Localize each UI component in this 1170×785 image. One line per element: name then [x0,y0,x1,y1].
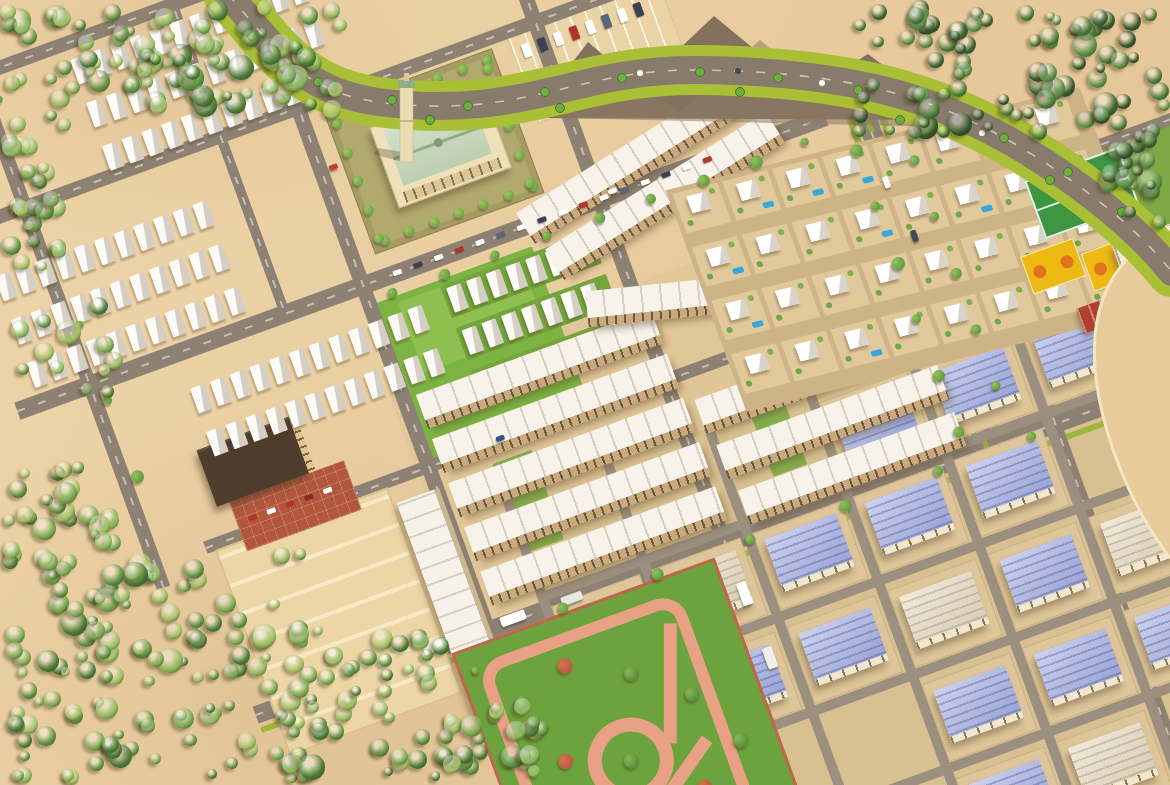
villa-pool [881,229,894,237]
townhouse-unit [423,348,446,378]
townhouse-unit [34,257,57,287]
villa-bush [706,273,714,280]
townhouse-unit [109,279,132,309]
villa-bush [1015,286,1023,293]
villa-bush [935,157,943,164]
townhouse-unit [204,294,227,324]
villa-house [1034,105,1060,127]
townhouse-unit [220,98,243,128]
townhouse-unit [169,19,192,49]
townhouse-unit [188,250,211,280]
townhouse-unit [205,55,228,85]
townhouse-unit [145,315,168,345]
townhouse-unit [189,12,212,42]
townhouse-unit [133,221,156,251]
warehouse-wall [1085,768,1159,785]
townhouse-unit [70,293,93,323]
townhouse-unit [66,344,89,374]
villa-house [885,142,911,164]
townhouse-unit [129,272,152,302]
townhouse-unit [0,272,18,302]
townhouse-unit [149,26,172,56]
townhouse-unit [309,341,332,371]
villa-bush [726,327,734,334]
warehouse-roof [1100,498,1170,577]
townhouse-unit [181,113,204,143]
townhouse-unit [90,48,113,78]
villa-house [725,299,751,321]
townhouse-unit [173,207,196,237]
villa-house [736,179,762,201]
villa-bush [825,302,833,309]
warehouse-wall [1149,319,1170,352]
townhouse-unit [319,62,342,92]
townhouse-unit [106,91,129,121]
villa-bush [1006,113,1014,120]
warehouse-roof [1068,722,1159,785]
villa-house [786,167,812,189]
warehouse-wall [1151,638,1170,671]
villa-bush [875,289,883,296]
townhouse-unit [303,19,326,49]
villa-house [844,327,870,349]
villa-house [905,195,931,217]
villa-bush [816,336,824,343]
street-tree [0,94,4,106]
villa-pool [870,349,883,357]
villa-bush [756,261,764,268]
townhouse-unit [387,312,410,342]
villa-bush [1035,133,1043,140]
court-circle [1059,253,1076,270]
villa-bush [795,368,803,375]
townhouse-unit [249,362,272,392]
villa-pool [981,204,994,212]
villa-bush [1044,306,1052,313]
townhouse-unit [165,308,188,338]
villa-bush [827,216,835,223]
villa-bush [855,236,863,243]
warehouse-solar-roof [865,477,956,556]
townhouse-unit [324,384,347,414]
warehouse-solar-roof [1034,628,1125,707]
townhouse-unit [279,77,302,107]
park-path [664,623,677,743]
townhouse-unit [305,391,328,421]
villa-bush [944,330,952,337]
townhouse-unit [226,420,249,450]
villa-pool [762,200,775,208]
villa-bush [846,270,854,277]
townhouse-unit [244,41,267,71]
townhouse-unit [264,33,287,63]
villa-house [745,352,771,374]
court-circle [1031,263,1048,280]
townhouse-unit [190,384,213,414]
villa-house [805,220,831,242]
townhouse-unit [86,98,109,128]
villa-bush [687,219,695,226]
townhouse-unit [268,0,291,13]
villa-house [954,183,980,205]
townhouse-unit [54,250,77,280]
villa-house [755,233,781,255]
townhouse-unit [364,370,387,400]
townhouse-unit [113,229,136,259]
city-plan-rotated [0,0,1170,785]
townhouse-unit [161,120,184,150]
townhouse-unit [74,243,97,273]
villa-bush [806,248,814,255]
townhouse-unit [383,362,406,392]
villa-house [935,129,961,151]
villa-bush [907,138,915,145]
townhouse-unit [90,286,113,316]
townhouse-unit [230,369,253,399]
court-circle [1092,260,1109,277]
villa-bush [894,343,902,350]
townhouse-unit [224,286,247,316]
warehouse-roof [899,571,990,650]
townhouse-unit [407,305,430,335]
villa-bush [985,145,993,152]
townhouse-unit [201,105,224,135]
villa-bush [775,314,783,321]
townhouse-unit [30,308,53,338]
villa-bush [758,175,766,182]
townhouse-unit [192,200,215,230]
villa-bush [845,355,853,362]
townhouse-unit [105,329,128,359]
villa-bush [786,195,794,202]
townhouse-unit [70,55,93,85]
villa-house [974,237,1000,259]
townhouse-unit [11,315,34,345]
villa-bush [925,277,933,284]
villa-house [993,290,1019,312]
villa-bush [974,265,982,272]
townhouse-unit [26,358,49,388]
townhouse-unit [46,351,69,381]
townhouse-unit [110,40,133,70]
villa-bush [797,282,805,289]
villa-pool [862,176,875,184]
admin-building-wall [291,422,315,471]
villa-house [775,286,801,308]
villa-bush [766,348,774,355]
villa-house [794,340,820,362]
villa-bush [836,182,844,189]
townhouse-unit [122,134,145,164]
villa-house [706,245,732,267]
warehouse-solar-roof [764,514,855,593]
villa-bush [1005,199,1013,206]
townhouse-unit [260,84,283,114]
warehouse-solar-roof [798,608,889,687]
villa-bush [1056,101,1064,108]
townhouse-unit [299,69,322,99]
villa-bush [996,233,1004,240]
townhouse-unit [328,333,351,363]
townhouse-unit [184,301,207,331]
warehouse-solar-roof [965,440,1056,519]
townhouse-unit [86,337,109,367]
townhouse-unit [15,265,38,295]
soccer-center-circle [1073,183,1094,204]
villa-bush [745,380,753,387]
villa-bush [727,241,735,248]
villa-bush [777,229,785,236]
villa-pool [732,266,745,274]
villa-house [825,274,851,296]
townhouse-unit [209,5,232,35]
townhouse-unit [126,84,149,114]
townhouse-unit [169,257,192,287]
villa-bush [976,179,984,186]
townhouse-unit [210,377,233,407]
townhouse-unit [224,48,247,78]
villa-bush [736,207,744,214]
townhouse-unit [153,214,176,244]
villa-bush [926,191,934,198]
townhouse-unit [403,355,426,385]
townhouse-unit [368,319,391,349]
vehicle [328,163,338,171]
townhouse-unit [289,348,312,378]
villa-bush [946,245,954,252]
townhouse-unit [50,301,73,331]
townhouse-unit [208,243,231,273]
aerial-render-canvas: Aerial 3D rendering of a master-planned … [0,0,1170,785]
villa-house [686,192,712,214]
villa-bush [807,163,815,170]
villa-bush [965,299,973,306]
villa-bush [994,318,1002,325]
townhouse-unit [245,413,268,443]
warehouse-solar-roof [933,665,1024,744]
villa-pool [751,320,764,328]
villa-bush [1026,167,1034,174]
villa-house [835,154,861,176]
townhouse-unit [185,62,208,92]
townhouse-unit [130,33,153,63]
street-tree [888,98,900,110]
villa-bush [747,295,755,302]
townhouse-unit [283,26,306,56]
villa-bush [708,187,716,194]
villa-bush [955,211,963,218]
townhouse-unit [344,377,367,407]
townhouse-unit [285,398,308,428]
townhouse-unit [269,355,292,385]
townhouse-unit [265,405,288,435]
townhouse-unit [145,77,168,107]
warehouse-wall [1117,544,1170,577]
townhouse-unit [228,0,251,27]
villa-house [855,208,881,230]
townhouse-unit [348,326,371,356]
villa-pool [812,188,825,196]
street-tree [800,136,811,147]
villa-bush [866,323,874,330]
townhouse-unit [125,322,148,352]
warehouse-solar-roof [1000,534,1091,613]
villa-house [985,117,1011,139]
townhouse-unit [287,0,310,5]
villa-house [924,249,950,271]
villa-house [944,303,970,325]
townhouse-unit [240,91,263,121]
townhouse-unit [141,127,164,157]
villa-bush [957,125,965,132]
townhouse-unit [165,69,188,99]
townhouse-unit [94,236,117,266]
townhouse-unit [102,141,125,171]
townhouse-unit [149,265,172,295]
